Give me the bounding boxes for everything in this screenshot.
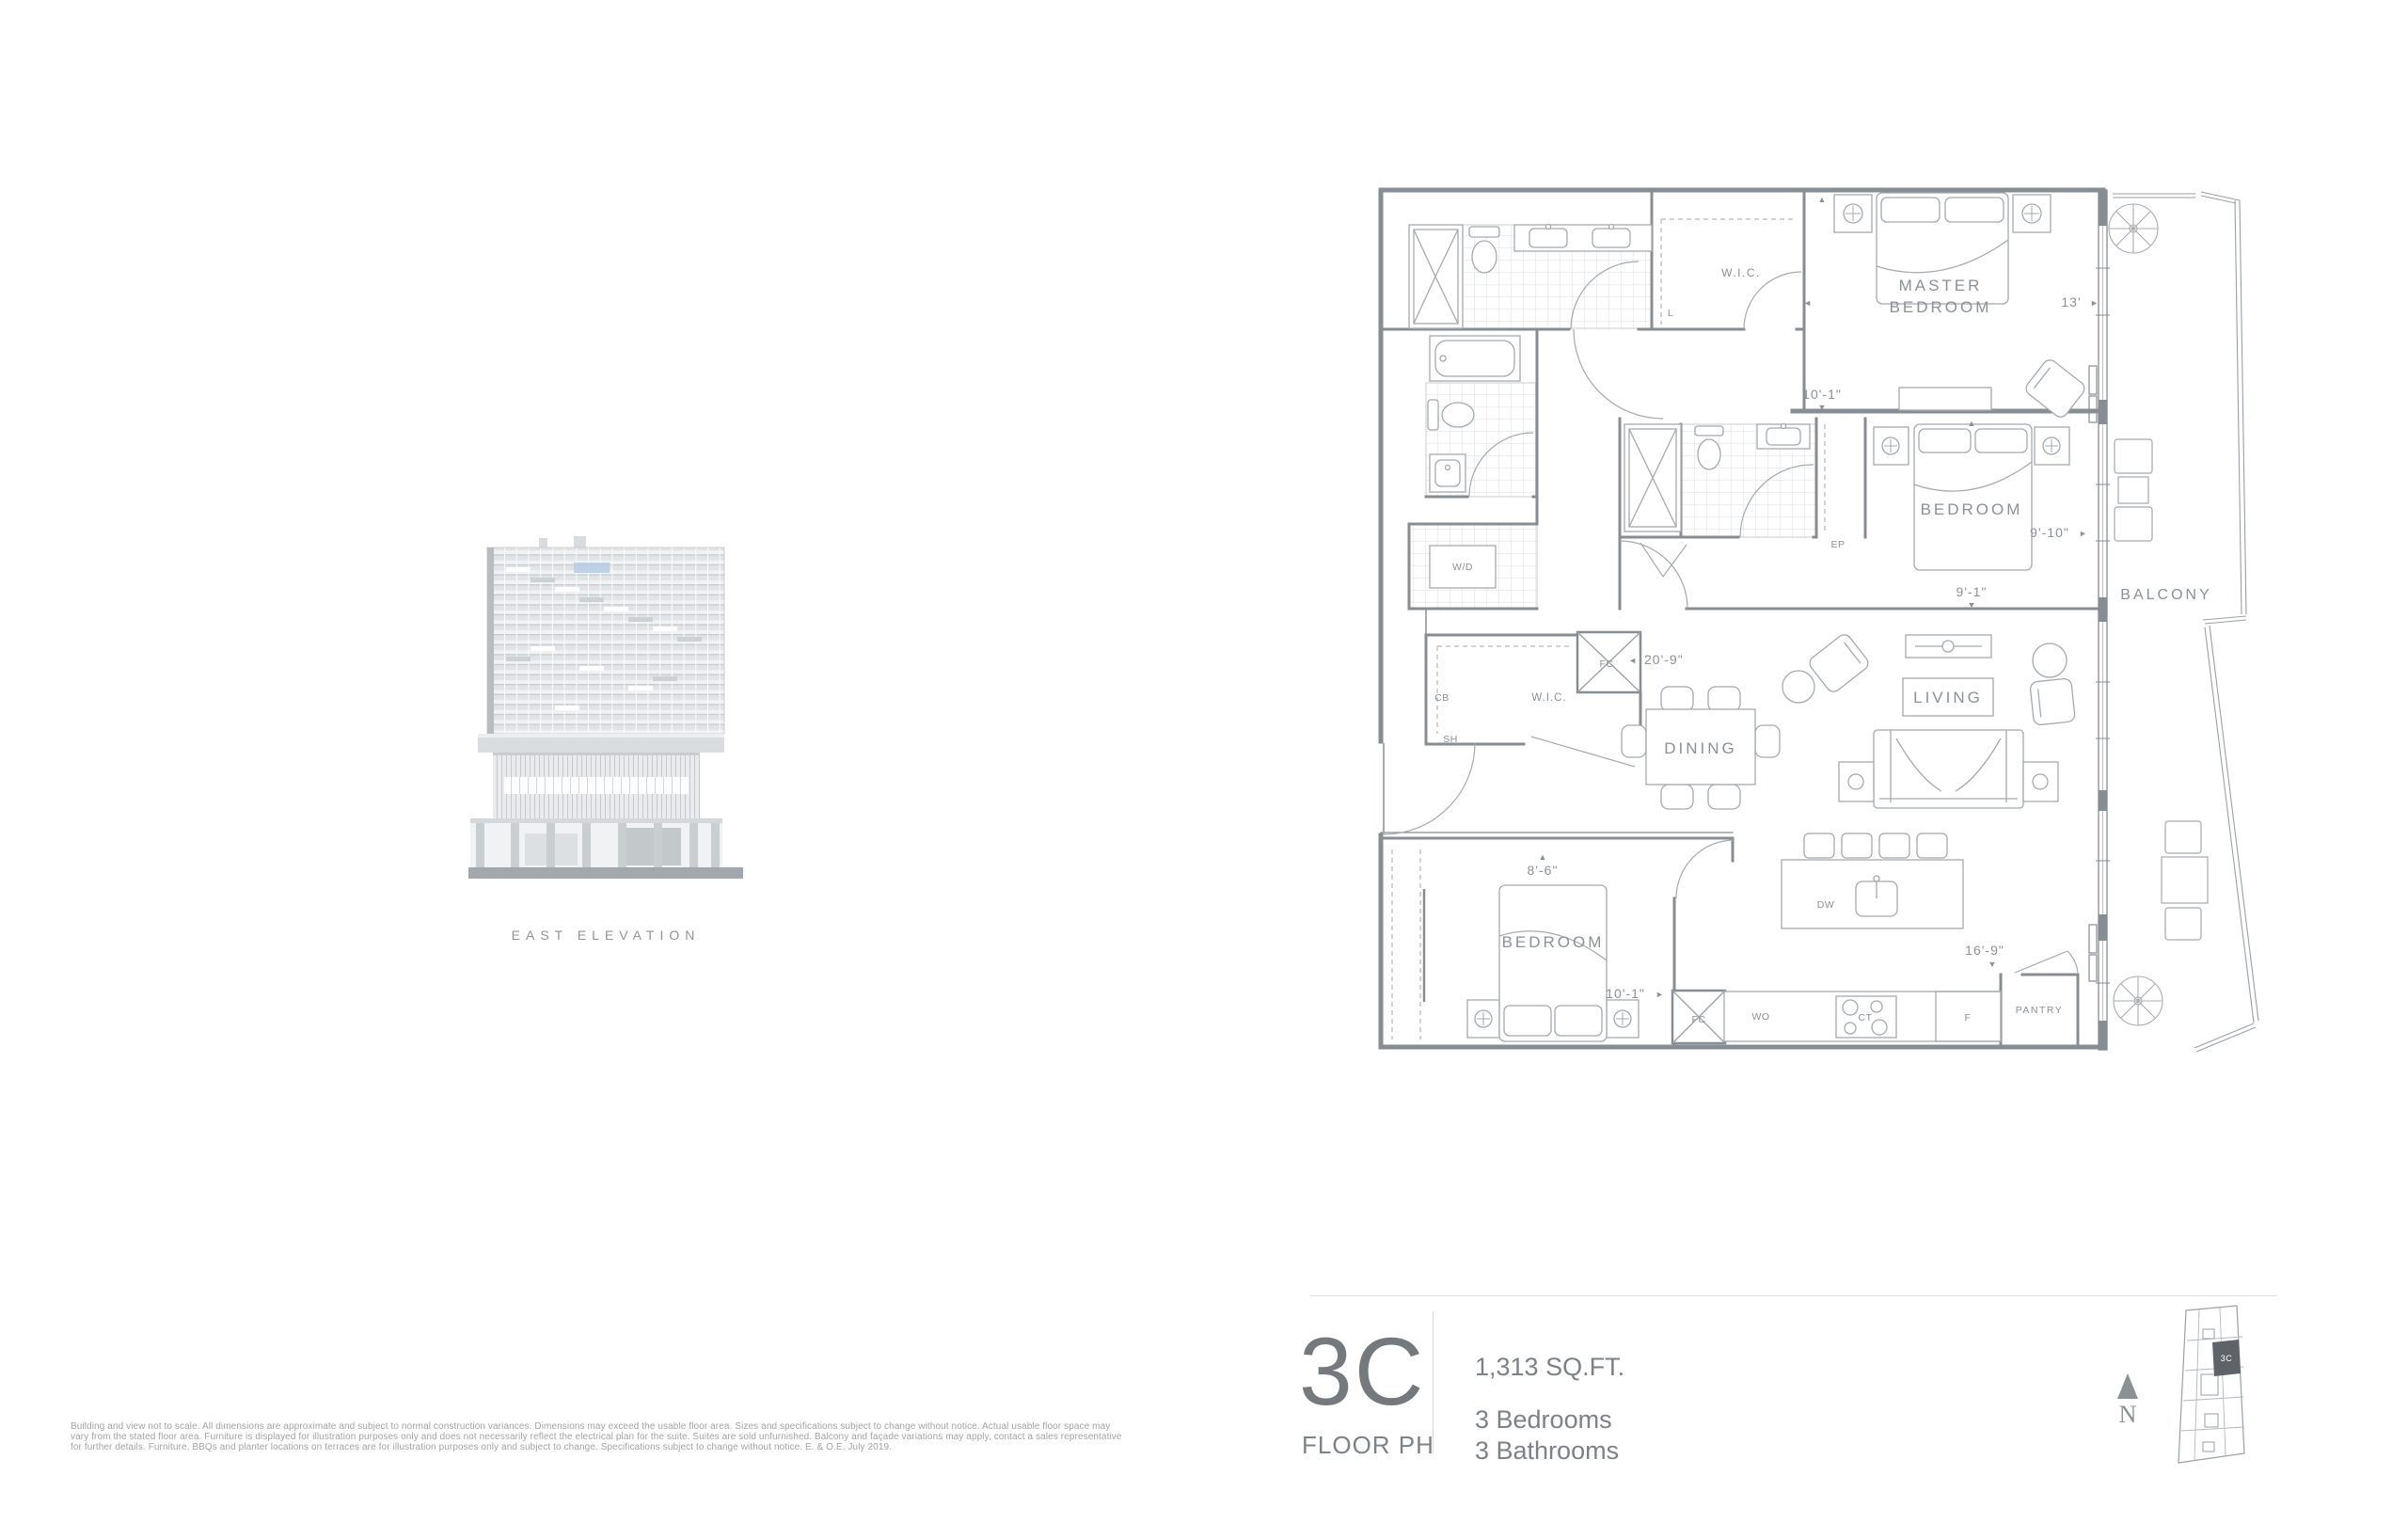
tree-bottom [2114, 976, 2162, 1025]
sliding-door-panels [2089, 366, 2097, 981]
balcony-furniture [2115, 439, 2208, 940]
building-elevation-figure [468, 534, 743, 911]
bathtub [1430, 336, 1520, 381]
dim-bedroom2-depth: 9'-1" [1956, 584, 1988, 599]
tree-top [2109, 204, 2158, 253]
label-wic-foyer: W.I.C. [1531, 692, 1566, 704]
dim-arrow: ▲ [1539, 852, 1547, 862]
highlighted-unit-band [574, 563, 610, 573]
disclaimer-text: Building and view not to scale. All dime… [71, 1421, 1124, 1452]
label-dining: DINING [1664, 739, 1737, 757]
label-fc-kitchen: FC [1692, 1014, 1706, 1025]
label-dw: DW [1817, 899, 1835, 911]
floor-label: FLOOR PH [1302, 1431, 1434, 1460]
toilet-master [1469, 227, 1499, 273]
dim-bedroom3-depth: 10'-1" [1606, 986, 1645, 1001]
label-ct: CT [1859, 1012, 1873, 1023]
shower-master [1409, 225, 1463, 328]
sink-hall-bath [1430, 454, 1465, 492]
dim-arrow: ◄ [1803, 298, 1812, 308]
toilet-bedroom2 [1695, 426, 1723, 469]
label-master-1: MASTER [1899, 277, 1983, 294]
summary-divider [1433, 1311, 1434, 1453]
ground-line [468, 867, 743, 879]
unit-bed-bath: 3 Bedrooms 3 Bathrooms [1475, 1404, 1619, 1467]
dim-arrow: ▼ [1818, 403, 1827, 412]
living-set [1782, 632, 2075, 808]
dim-arrow: ◄ [1628, 656, 1637, 665]
dim-arrow: ▼ [1988, 960, 1997, 969]
floorplan-sheet: EAST ELEVATION [0, 0, 2408, 1523]
elevation-caption: EAST ELEVATION [468, 928, 743, 943]
living-label-box: LIVING [1903, 678, 1993, 716]
dim-arrow: ► [2079, 529, 2087, 538]
label-fc-closet: FC [1600, 658, 1614, 670]
north-arrow-icon [2117, 1373, 2138, 1399]
label-balcony: BALCONY [2120, 587, 2211, 603]
dim-arrow: ▼ [1968, 600, 1976, 610]
north-label: N [2109, 1401, 2147, 1429]
shower-bedroom2 [1624, 424, 1681, 531]
dim-bedroom3-width: 8'-6" [1528, 863, 1559, 878]
label-bedroom2: BEDROOM [1921, 500, 2023, 518]
unit-bedrooms: 3 Bedrooms [1475, 1404, 1619, 1436]
kitchen-island [1782, 833, 1963, 928]
dim-arrow: ▲ [1818, 195, 1827, 204]
unit-bathrooms: 3 Bathrooms [1475, 1436, 1619, 1467]
bedroom3-bed [1467, 885, 1639, 1041]
vanity-master [1514, 225, 1652, 252]
unit-code: 3C [1299, 1325, 1425, 1419]
dim-arrow: ► [1655, 990, 1664, 999]
key-plan: 3C [2163, 1301, 2257, 1484]
dim-arrow: ► [2090, 298, 2099, 308]
summary-rule [1310, 1295, 2277, 1296]
label-linen: L [1668, 308, 1673, 319]
label-f: F [1965, 1012, 1972, 1023]
sink-bedroom2 [1757, 424, 1810, 450]
label-pantry: PANTRY [2016, 1005, 2064, 1016]
label-sh: SH [1443, 734, 1458, 745]
north-indicator: N [2109, 1373, 2147, 1429]
dim-master-width: 13' [2061, 294, 2081, 309]
window-wall [2089, 190, 2110, 1050]
label-wo: WO [1751, 1011, 1769, 1023]
balcony-planter-trees [2109, 204, 2162, 1025]
label-living: LIVING [1913, 689, 1983, 706]
laundry-label: W/D [1452, 562, 1473, 573]
washer-dryer: W/D [1430, 546, 1496, 588]
unit-area: 1,313 SQ.FT. [1475, 1353, 1624, 1382]
keyplan-unit-label: 3C [2221, 1354, 2233, 1363]
dim-arrow: ▲ [1968, 419, 1976, 428]
toilet-hall-bath [1428, 400, 1474, 430]
elevation-base [468, 818, 743, 879]
floor-plan: W/D [1364, 174, 2267, 1157]
dim-bedroom2-width: 9'-10" [2030, 525, 2069, 540]
label-ep: EP [1830, 539, 1845, 550]
elevation-tower [487, 536, 724, 734]
label-cb: CB [1434, 692, 1450, 704]
dim-great-room: 20'-9" [1644, 652, 1684, 667]
dim-master-depth: 10'-1" [1802, 387, 1842, 402]
elevation-podium [478, 734, 724, 818]
bedroom2-bed [1874, 424, 2069, 570]
label-master-2: BEDROOM [1890, 298, 1992, 316]
dim-kitchen-run: 16'-9" [1965, 943, 2004, 958]
label-wic-master: W.I.C. [1721, 266, 1761, 279]
label-bedroom3: BEDROOM [1502, 933, 1605, 951]
